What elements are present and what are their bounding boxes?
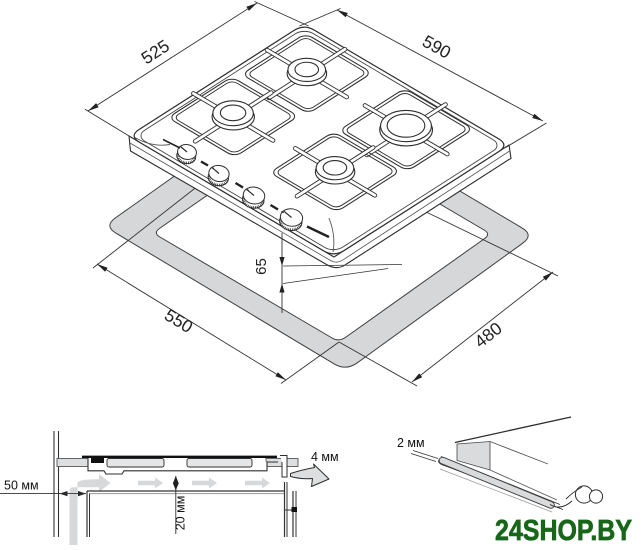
svg-text:480: 480 (470, 318, 506, 352)
svg-text:65: 65 (253, 258, 270, 275)
svg-text:525: 525 (138, 36, 173, 69)
svg-text:50 мм: 50 мм (4, 479, 39, 493)
svg-text:20 мм: 20 мм (174, 496, 188, 531)
svg-text:4 мм: 4 мм (311, 450, 339, 464)
svg-text:24SHOP.BY: 24SHOP.BY (495, 515, 632, 547)
svg-text:550: 550 (161, 305, 197, 337)
svg-text:590: 590 (419, 31, 454, 63)
svg-text:2 мм: 2 мм (397, 436, 425, 450)
